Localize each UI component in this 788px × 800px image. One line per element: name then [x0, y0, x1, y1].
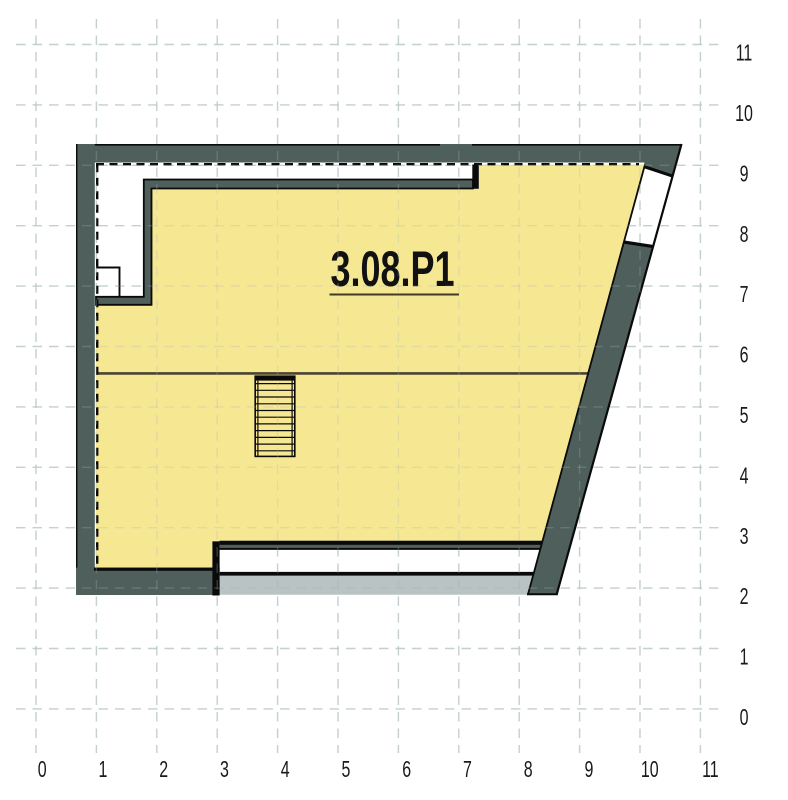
svg-text:5: 5 [740, 403, 749, 429]
svg-text:1: 1 [98, 757, 107, 783]
svg-text:8: 8 [524, 757, 533, 783]
svg-text:8: 8 [740, 222, 749, 248]
svg-text:1: 1 [740, 645, 749, 671]
svg-text:5: 5 [341, 757, 350, 783]
svg-text:7: 7 [463, 757, 472, 783]
svg-text:9: 9 [740, 162, 749, 188]
svg-text:3: 3 [220, 757, 229, 783]
svg-text:2: 2 [159, 757, 168, 783]
svg-text:4: 4 [281, 757, 290, 783]
svg-text:10: 10 [735, 101, 753, 127]
svg-text:7: 7 [740, 282, 749, 308]
svg-text:11: 11 [736, 41, 753, 67]
svg-text:11: 11 [702, 757, 719, 783]
svg-text:4: 4 [740, 464, 749, 490]
svg-text:2: 2 [740, 584, 749, 610]
svg-text:0: 0 [38, 757, 47, 783]
svg-text:9: 9 [584, 757, 593, 783]
svg-text:6: 6 [740, 343, 749, 369]
svg-text:3: 3 [740, 524, 749, 550]
svg-text:3.08.P1: 3.08.P1 [331, 242, 455, 297]
svg-text:10: 10 [641, 757, 659, 783]
svg-text:0: 0 [740, 705, 749, 731]
svg-text:6: 6 [402, 757, 411, 783]
